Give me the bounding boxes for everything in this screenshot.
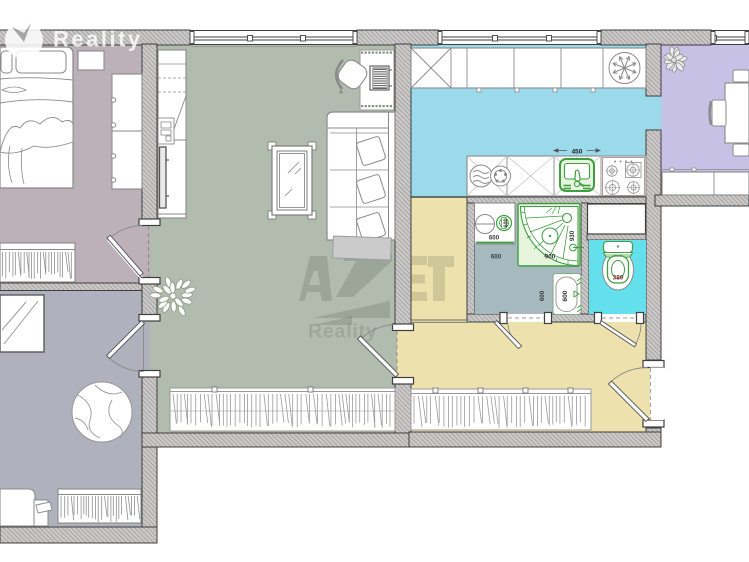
svg-text:380: 380 bbox=[613, 275, 624, 282]
svg-text:930: 930 bbox=[569, 230, 576, 241]
svg-text:Reality: Reality bbox=[308, 321, 378, 343]
svg-text:600: 600 bbox=[489, 235, 500, 242]
svg-text:600: 600 bbox=[539, 290, 546, 301]
svg-text:900: 900 bbox=[545, 254, 556, 261]
svg-text:600: 600 bbox=[491, 254, 502, 261]
svg-text:Reality: Reality bbox=[53, 27, 143, 52]
svg-text:450: 450 bbox=[572, 149, 583, 156]
svg-text:600: 600 bbox=[562, 290, 569, 301]
svg-text:600: 600 bbox=[504, 218, 510, 227]
